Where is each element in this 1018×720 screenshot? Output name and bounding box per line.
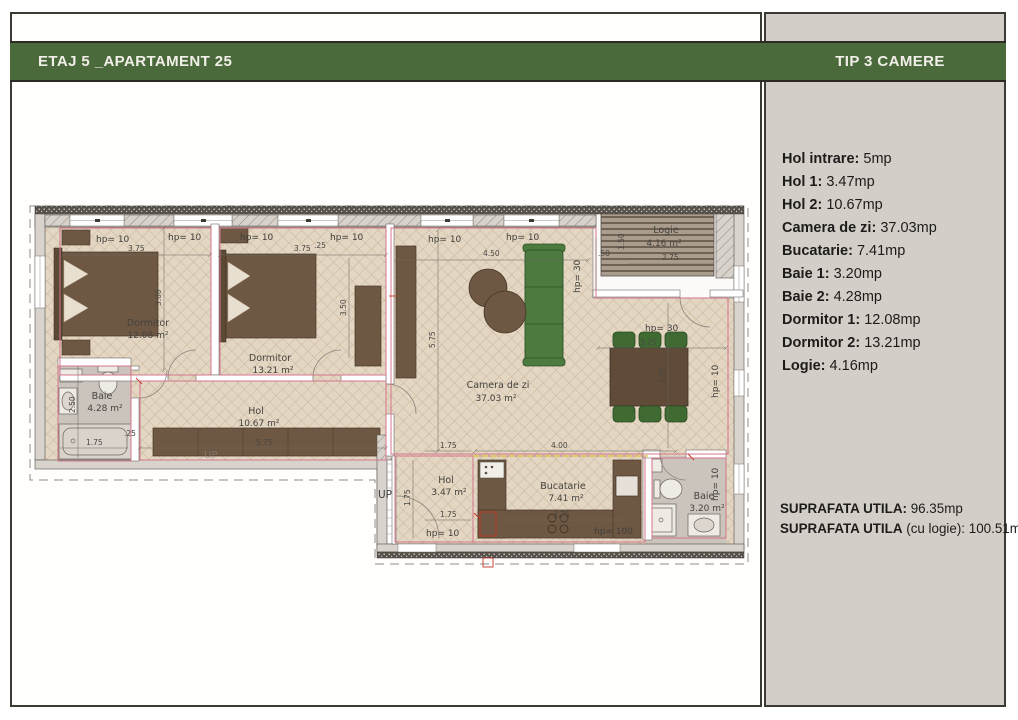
toilet-tank	[654, 480, 660, 498]
room-label: Hol intrare:	[782, 151, 859, 167]
dining-chair	[613, 406, 635, 422]
dining-chair	[665, 406, 687, 422]
list-item: Camera de zi: 37.03mp	[782, 217, 992, 240]
hol1-area: 3.47 m²	[431, 488, 467, 498]
room-value: 3.20mp	[834, 266, 882, 282]
hol2-label: Hol	[248, 406, 264, 417]
svg-text:2.75: 2.75	[662, 253, 679, 262]
svg-text:1.75: 1.75	[440, 510, 457, 519]
baie2-label: Baie	[92, 391, 113, 402]
dormitor2-label: Dormitor	[249, 353, 291, 364]
floor-plan-drawing: Dormitor 12.08 m² Dormitor 13.21 m² Came…	[28, 198, 755, 573]
dining-chair	[613, 332, 635, 348]
room-value: 7.41mp	[857, 243, 905, 259]
dormitor1-area: 12.08 m²	[127, 331, 168, 341]
sofa-armrest	[523, 358, 565, 366]
apartment-type-title: TIP 3 CAMERE	[764, 43, 1016, 80]
dormitor2-area: 13.21 m²	[252, 366, 293, 376]
sofa	[525, 250, 563, 362]
total-with-loggia: SUPRAFATA UTILA (cu logie): 100.51mp	[780, 519, 1002, 539]
svg-text:hp= 10: hp= 10	[506, 233, 540, 243]
kitchen-sink-unit	[480, 462, 504, 478]
info-panel: Hol intrare: 5mp Hol 1: 3.47mp Hol 2: 10…	[764, 12, 1006, 707]
list-item: Hol 1: 3.47mp	[782, 171, 992, 194]
svg-text:.25: .25	[124, 429, 136, 438]
svg-text:5.75: 5.75	[428, 331, 437, 348]
nightstand	[62, 230, 90, 245]
stairs-up-label: UP	[378, 489, 392, 501]
svg-text:hp= 10: hp= 10	[96, 235, 130, 245]
coffee-table	[484, 291, 526, 333]
room-label: Bucatarie:	[782, 243, 853, 259]
hol1-label: Hol	[438, 475, 454, 486]
room-value: 3.47mp	[826, 174, 874, 190]
svg-text:3.75: 3.75	[294, 244, 311, 253]
sheet-title: ETAJ 5 _APARTAMENT 25	[38, 43, 232, 80]
list-item: Hol 2: 10.67mp	[782, 194, 992, 217]
svg-text:3.50: 3.50	[339, 299, 348, 316]
svg-text:hp= 10: hp= 10	[428, 235, 462, 245]
bucatarie-label: Bucatarie	[540, 481, 586, 492]
nightstand	[62, 340, 90, 355]
svg-text:1.75: 1.75	[86, 438, 103, 447]
living-area: 37.03 m²	[475, 394, 516, 404]
svg-text:1.75: 1.75	[440, 441, 457, 450]
svg-text:4.00: 4.00	[551, 441, 568, 450]
dormitor1-label: Dormitor	[127, 318, 169, 329]
dining-chair	[639, 406, 661, 422]
radiator-symbol	[483, 558, 493, 567]
room-value: 13.21mp	[864, 335, 920, 351]
svg-text:hp= 10: hp= 10	[330, 233, 364, 243]
tv-cabinet	[396, 246, 416, 378]
list-item: Dormitor 2: 13.21mp	[782, 332, 992, 355]
svg-text:hp= 30: hp= 30	[645, 324, 679, 334]
toilet-tank	[98, 366, 118, 372]
dining-table	[610, 348, 688, 406]
room-label: Camera de zi:	[782, 220, 876, 236]
room-value: 12.08mp	[864, 312, 920, 328]
room-label: Baie 2:	[782, 289, 830, 305]
living-label: Camera de zi	[467, 380, 530, 391]
svg-text:5.75: 5.75	[256, 438, 273, 447]
list-item: Logie: 4.16mp	[782, 355, 992, 378]
logie-label: Logie	[653, 225, 679, 236]
room-label: Dormitor 1:	[782, 312, 860, 328]
baie1-area: 3.20 m²	[689, 504, 725, 514]
room-value: 37.03mp	[880, 220, 936, 236]
room-value: 4.16mp	[830, 358, 878, 374]
room-label: Dormitor 2:	[782, 335, 860, 351]
surface-totals: SUPRAFATA UTILA: 96.35mp SUPRAFATA UTILA…	[780, 499, 1002, 539]
svg-text:1.50: 1.50	[617, 233, 626, 250]
room-value: 4.28mp	[834, 289, 882, 305]
fridge	[616, 476, 638, 496]
bed2	[226, 254, 316, 338]
bedroom2-wardrobe	[355, 286, 381, 366]
svg-text:hp= 10: hp= 10	[711, 467, 721, 501]
title-bar: ETAJ 5 _APARTAMENT 25 TIP 3 CAMERE	[10, 41, 1006, 82]
svg-text:.25: .25	[314, 241, 326, 250]
svg-text:hp= 30: hp= 30	[573, 259, 583, 293]
svg-text:3.25: 3.25	[640, 338, 657, 347]
svg-text:3.75: 3.75	[658, 367, 667, 384]
svg-text:.50: .50	[598, 249, 610, 258]
svg-text:hp= 10: hp= 10	[168, 233, 202, 243]
svg-text:hp= 10: hp= 10	[240, 233, 274, 243]
list-item: Hol intrare: 5mp	[782, 148, 992, 171]
svg-text:3.75: 3.75	[128, 244, 145, 253]
baie2-area: 4.28 m²	[87, 404, 123, 414]
hol2-area: 10.67 m²	[238, 419, 279, 429]
svg-text:3.75: 3.75	[553, 510, 570, 519]
stairs-up-label-faint: UP	[204, 450, 217, 461]
list-item: Baie 1: 3.20mp	[782, 263, 992, 286]
svg-text:2.50: 2.50	[68, 396, 77, 413]
room-label: Logie:	[782, 358, 826, 374]
total-usable: SUPRAFATA UTILA: 96.35mp	[780, 499, 1002, 519]
room-value: 5mp	[863, 151, 891, 167]
list-item: Dormitor 1: 12.08mp	[782, 309, 992, 332]
svg-text:hp= 100: hp= 100	[594, 527, 633, 537]
room-label: Baie 1:	[782, 266, 830, 282]
bed1-headboard	[54, 248, 62, 340]
toilet	[660, 479, 682, 499]
svg-text:4.50: 4.50	[483, 249, 500, 258]
svg-text:3.00: 3.00	[154, 289, 163, 306]
dining-chair	[665, 332, 687, 348]
room-label: Hol 1:	[782, 174, 822, 190]
svg-text:hp= 10: hp= 10	[711, 364, 721, 398]
svg-text:1.75: 1.75	[403, 489, 412, 506]
room-label: Hol 2:	[782, 197, 822, 213]
bucatarie-area: 7.41 m²	[548, 494, 584, 504]
list-item: Bucatarie: 7.41mp	[782, 240, 992, 263]
room-value: 10.67mp	[826, 197, 882, 213]
svg-text:hp= 10: hp= 10	[426, 529, 460, 539]
logie-area: 4.16 m²	[646, 239, 682, 249]
list-item: Baie 2: 4.28mp	[782, 286, 992, 309]
floorplan-sheet: Hol intrare: 5mp Hol 1: 3.47mp Hol 2: 10…	[0, 0, 1018, 720]
room-area-list: Hol intrare: 5mp Hol 1: 3.47mp Hol 2: 10…	[782, 148, 992, 378]
